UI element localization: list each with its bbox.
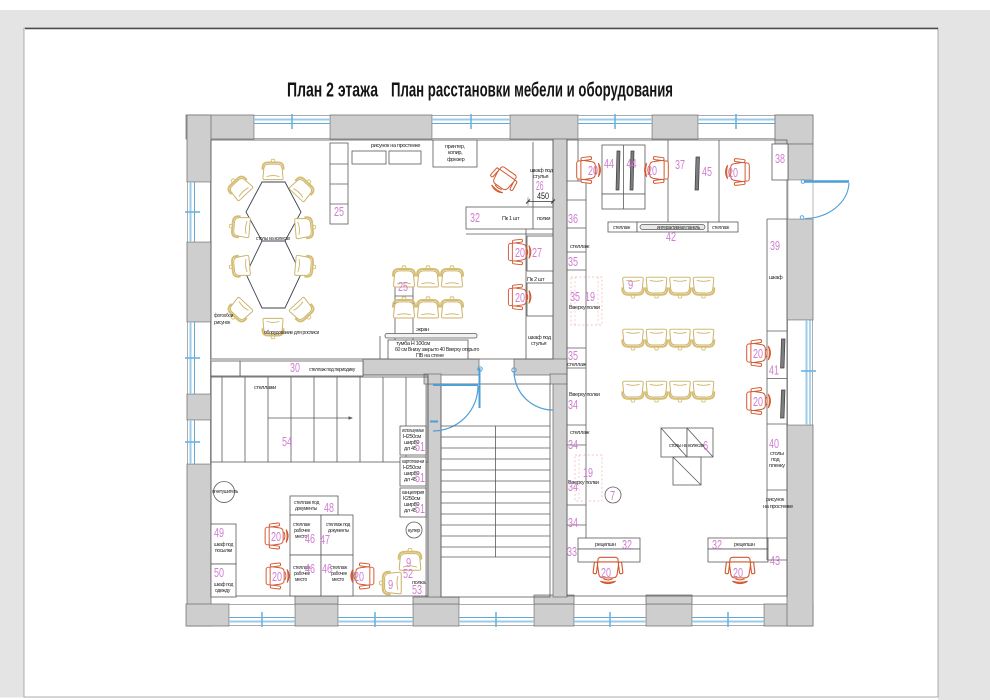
- svg-text:на простенке: на простенке: [763, 504, 793, 510]
- svg-text:20: 20: [515, 246, 525, 260]
- svg-text:30: 30: [290, 361, 300, 375]
- svg-text:документы: документы: [295, 506, 317, 512]
- svg-text:50: 50: [214, 566, 224, 580]
- svg-text:20: 20: [272, 570, 282, 584]
- svg-text:51: 51: [415, 502, 425, 516]
- svg-text:32: 32: [470, 211, 480, 225]
- svg-text:столы на колесах: столы на колесах: [669, 443, 704, 449]
- svg-text:интерактивная панель: интерактивная панель: [657, 225, 700, 231]
- svg-text:фотообои: фотообои: [214, 313, 233, 319]
- svg-text:стеллаж под периодику: стеллаж под периодику: [309, 367, 355, 373]
- svg-text:Пк 1 шт: Пк 1 шт: [502, 216, 520, 222]
- svg-text:стеллаж: стеллаж: [570, 430, 590, 436]
- svg-text:43: 43: [770, 554, 780, 568]
- svg-text:экран: экран: [416, 327, 429, 333]
- svg-text:документы: документы: [328, 528, 349, 534]
- svg-text:19: 19: [583, 466, 593, 480]
- svg-text:38: 38: [775, 152, 785, 166]
- svg-text:фрезер: фрезер: [447, 157, 465, 163]
- svg-text:столы на колесах: столы на колесах: [256, 236, 290, 242]
- svg-text:35: 35: [568, 349, 578, 363]
- svg-text:20: 20: [354, 570, 364, 584]
- svg-text:стеллажи: стеллажи: [254, 385, 276, 391]
- svg-text:План расстановки мебели и обор: План расстановки мебели и оборудования: [391, 79, 673, 102]
- svg-text:39: 39: [770, 239, 780, 253]
- svg-text:пленку: пленку: [769, 463, 785, 469]
- svg-text:20: 20: [588, 164, 598, 178]
- svg-text:20: 20: [515, 291, 525, 305]
- svg-text:450: 450: [537, 191, 549, 202]
- svg-text:9: 9: [628, 278, 633, 292]
- svg-text:ПВ на стене: ПВ на стене: [416, 353, 444, 359]
- svg-text:36: 36: [568, 212, 578, 226]
- svg-text:рисунок: рисунок: [766, 497, 785, 503]
- svg-text:Пк 2 шт: Пк 2 шт: [527, 277, 545, 283]
- svg-text:полки: полки: [537, 216, 550, 222]
- svg-text:20: 20: [753, 395, 763, 409]
- svg-text:огнетушитель: огнетушитель: [212, 489, 238, 495]
- svg-text:стеллаж: стеллаж: [613, 225, 631, 231]
- svg-text:20: 20: [647, 164, 657, 178]
- svg-text:рецепшн: рецепшн: [734, 542, 755, 548]
- svg-text:34: 34: [568, 398, 578, 412]
- svg-text:35: 35: [568, 255, 578, 269]
- svg-text:рисунок на простенке: рисунок на простенке: [371, 143, 420, 149]
- svg-text:20: 20: [271, 530, 281, 544]
- svg-text:34: 34: [568, 438, 578, 452]
- svg-text:место: место: [295, 577, 307, 583]
- svg-text:20: 20: [753, 347, 763, 361]
- svg-text:46: 46: [305, 532, 315, 546]
- svg-text:одежду: одежду: [215, 588, 230, 594]
- svg-text:44: 44: [627, 157, 637, 171]
- svg-text:20: 20: [733, 566, 743, 580]
- svg-text:19: 19: [585, 290, 595, 304]
- svg-text:стеллаж: стеллаж: [570, 244, 590, 250]
- svg-text:41: 41: [769, 364, 779, 378]
- svg-text:54: 54: [282, 435, 292, 449]
- svg-text:42: 42: [666, 230, 676, 244]
- svg-text:кулер: кулер: [408, 528, 420, 534]
- svg-text:место: место: [332, 577, 344, 583]
- svg-text:44: 44: [604, 157, 614, 171]
- svg-text:33: 33: [567, 545, 577, 559]
- svg-text:46: 46: [322, 562, 332, 576]
- svg-text:стеллаж: стеллаж: [712, 225, 730, 231]
- svg-text:32: 32: [712, 538, 722, 552]
- svg-text:Вверху полки: Вверху полки: [569, 305, 600, 311]
- svg-text:34: 34: [568, 516, 578, 530]
- svg-text:27: 27: [532, 246, 542, 260]
- svg-text:стеллаж: стеллаж: [567, 362, 587, 368]
- svg-text:20: 20: [601, 566, 611, 580]
- svg-text:46: 46: [305, 562, 315, 576]
- svg-text:34: 34: [568, 480, 578, 494]
- svg-text:53: 53: [412, 583, 422, 597]
- svg-text:40: 40: [769, 437, 779, 451]
- svg-text:25: 25: [334, 205, 344, 219]
- svg-text:52: 52: [403, 567, 413, 581]
- svg-text:оборудование для росписи: оборудование для росписи: [264, 330, 319, 336]
- svg-text:посылки: посылки: [215, 548, 232, 554]
- svg-text:37: 37: [675, 158, 685, 172]
- svg-text:48: 48: [324, 501, 334, 515]
- svg-text:рецепшн: рецепшн: [595, 542, 616, 548]
- svg-text:шкаф: шкаф: [769, 275, 783, 281]
- svg-text:51: 51: [415, 471, 425, 485]
- svg-text:47: 47: [320, 533, 330, 547]
- svg-text:копир,: копир,: [448, 150, 463, 156]
- svg-text:20: 20: [728, 166, 738, 180]
- svg-text:45: 45: [702, 165, 712, 179]
- svg-text:стулья: стулья: [531, 341, 547, 347]
- svg-text:рисунок: рисунок: [214, 320, 231, 326]
- svg-text:49: 49: [214, 526, 224, 540]
- svg-text:32: 32: [622, 538, 632, 552]
- svg-text:25: 25: [398, 280, 408, 294]
- svg-text:35: 35: [570, 290, 580, 304]
- svg-text:План 2 этажа: План 2 этажа: [287, 79, 378, 102]
- svg-text:51: 51: [415, 440, 425, 454]
- svg-text:9: 9: [388, 578, 393, 592]
- svg-text:7: 7: [610, 489, 615, 503]
